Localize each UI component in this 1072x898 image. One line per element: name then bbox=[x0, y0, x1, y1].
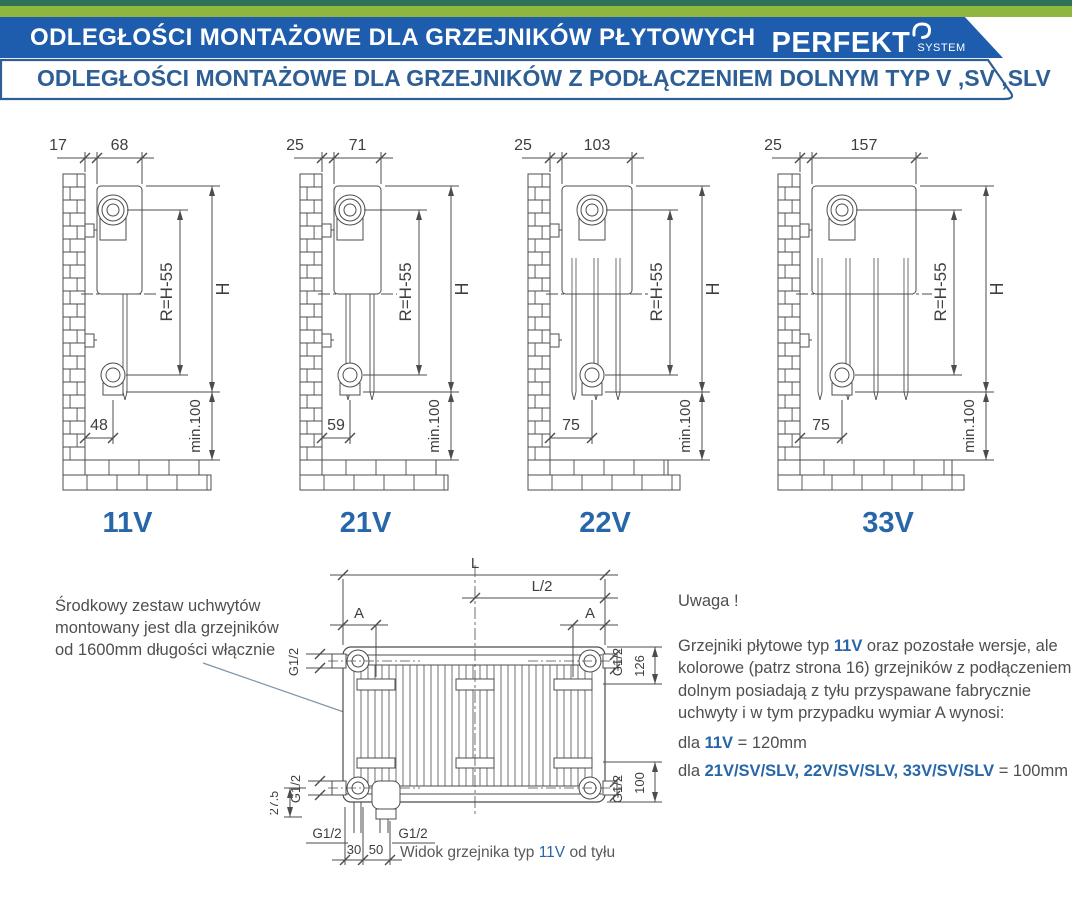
floor bbox=[528, 460, 680, 490]
r-dim: R=H-55 bbox=[931, 262, 950, 321]
h-dim: H bbox=[213, 283, 233, 296]
brick-wall bbox=[300, 174, 322, 475]
top-strip-green bbox=[0, 6, 1072, 17]
thread-label: G1/2 bbox=[398, 826, 427, 841]
radiator-body bbox=[546, 186, 648, 400]
thread-label: G1/2 bbox=[312, 826, 341, 841]
brick-wall bbox=[778, 174, 800, 475]
depth-dim: 103 bbox=[584, 137, 611, 154]
rear-view-caption: Widok grzejnika typ 11V od tyłu bbox=[400, 844, 615, 862]
notes-types: 11V bbox=[705, 734, 733, 752]
thread-label: G1/2 bbox=[286, 648, 301, 676]
sub-header-title: ODLEGŁOŚCI MONTAŻOWE DLA GRZEJNIKÓW Z PO… bbox=[37, 58, 1051, 99]
type-label: 21V bbox=[340, 507, 392, 539]
dimensions: 2515775R=H-55Hmin.100 bbox=[764, 137, 1007, 460]
floor-clearance-dim: min.100 bbox=[426, 399, 443, 452]
floor bbox=[63, 460, 211, 490]
bottom-offset-dim: 59 bbox=[327, 417, 345, 434]
side-diagram-33v: 2515775R=H-55Hmin.10033V bbox=[754, 128, 1044, 548]
brand-logo-subtext: SYSTEM bbox=[917, 42, 965, 54]
r-dim: R=H-55 bbox=[647, 262, 666, 321]
notes-text: dla bbox=[678, 734, 705, 752]
brand-logo-text: PERFEKT bbox=[772, 30, 911, 56]
depth-dim: 157 bbox=[851, 137, 878, 154]
brand-logo: PERFEKT SYSTEM bbox=[772, 19, 966, 56]
a-value-row-other: dla 21V/SV/SLV, 22V/SV/SLV, 33V/SV/SLV =… bbox=[678, 762, 1072, 781]
wall-gap-dim: 25 bbox=[514, 137, 532, 154]
notes-paragraph: Grzejniki płytowe typ 11V oraz pozostałe… bbox=[678, 635, 1072, 725]
bottom-offset-dim: 75 bbox=[562, 417, 580, 434]
notes-text: Grzejniki płytowe typ bbox=[678, 637, 834, 655]
rear-view-diagram: LL/2AAG1/2G1/227.5G1/2G1/23050G1/2126G1/… bbox=[270, 555, 690, 885]
notes-block: Uwaga ! Grzejniki płytowe typ 11V oraz p… bbox=[678, 592, 1072, 781]
notes-text: dla bbox=[678, 762, 705, 780]
floor-clearance-dim: min.100 bbox=[961, 399, 978, 452]
type-label: 22V bbox=[579, 507, 631, 539]
dim-30: 30 bbox=[347, 842, 361, 857]
dim-126: 126 bbox=[632, 655, 647, 677]
dim-100: 100 bbox=[632, 772, 647, 794]
r-dim: R=H-55 bbox=[396, 262, 415, 321]
main-header-banner: ODLEGŁOŚCI MONTAŻOWE DLA GRZEJNIKÓW PŁYT… bbox=[0, 17, 1003, 58]
radiator-body bbox=[81, 186, 158, 400]
notes-value: = 120mm bbox=[733, 734, 807, 752]
depth-dim: 71 bbox=[349, 137, 367, 154]
dim-27-5: 27.5 bbox=[270, 791, 281, 815]
floor bbox=[778, 460, 964, 490]
bottom-offset-dim: 75 bbox=[812, 417, 830, 434]
thread-label: G1/2 bbox=[610, 648, 625, 676]
page-title: ODLEGŁOŚCI MONTAŻOWE DLA GRZEJNIKÓW PŁYT… bbox=[30, 24, 756, 52]
wall-gap-dim: 25 bbox=[286, 137, 304, 154]
notes-title: Uwaga ! bbox=[678, 592, 1072, 611]
type-label: 11V bbox=[103, 507, 154, 539]
caption-text: od tyłu bbox=[565, 844, 615, 861]
notes-types: 21V/SV/SLV, 22V/SV/SLV, 33V/SV/SLV bbox=[705, 762, 995, 780]
brick-wall bbox=[63, 174, 85, 475]
h-dim: H bbox=[703, 283, 723, 296]
wall-gap-dim: 25 bbox=[764, 137, 782, 154]
dim-50: 50 bbox=[369, 842, 383, 857]
wall-gap-dim: 17 bbox=[49, 137, 67, 154]
side-diagram-11v: 176848R=H-55Hmin.10011V bbox=[39, 128, 299, 548]
h-dim: H bbox=[987, 283, 1007, 296]
notes-type-11v: 11V bbox=[834, 637, 862, 655]
floor-clearance-dim: min.100 bbox=[677, 399, 694, 452]
caption-text: Widok grzejnika typ bbox=[400, 844, 539, 861]
caption-type: 11V bbox=[539, 844, 565, 861]
bottom-offset-dim: 48 bbox=[90, 417, 108, 434]
floor bbox=[300, 460, 448, 490]
a-value-row-11v: dla 11V = 120mm bbox=[678, 734, 1072, 753]
bracket-a-dim: A bbox=[585, 605, 595, 622]
thread-label: G1/2 bbox=[610, 775, 625, 803]
length-dim: L bbox=[471, 555, 479, 572]
radiator-body bbox=[318, 186, 397, 400]
radiator-rear-body bbox=[328, 565, 622, 817]
floor-clearance-dim: min.100 bbox=[187, 399, 204, 452]
h-dim: H bbox=[452, 283, 472, 296]
page: ODLEGŁOŚCI MONTAŻOWE DLA GRZEJNIKÓW PŁYT… bbox=[0, 0, 1072, 898]
r-dim: R=H-55 bbox=[157, 262, 176, 321]
bracket-a-dim: A bbox=[354, 605, 364, 622]
side-diagram-22v: 2510375R=H-55Hmin.10022V bbox=[504, 128, 764, 548]
brick-wall bbox=[528, 174, 550, 475]
type-label: 33V bbox=[862, 507, 914, 539]
side-diagram-21v: 257159R=H-55Hmin.10021V bbox=[276, 128, 536, 548]
depth-dim: 68 bbox=[111, 137, 129, 154]
half-length-dim: L/2 bbox=[532, 578, 553, 595]
notes-value: = 100mm bbox=[994, 762, 1068, 780]
radiator-body bbox=[796, 186, 932, 400]
